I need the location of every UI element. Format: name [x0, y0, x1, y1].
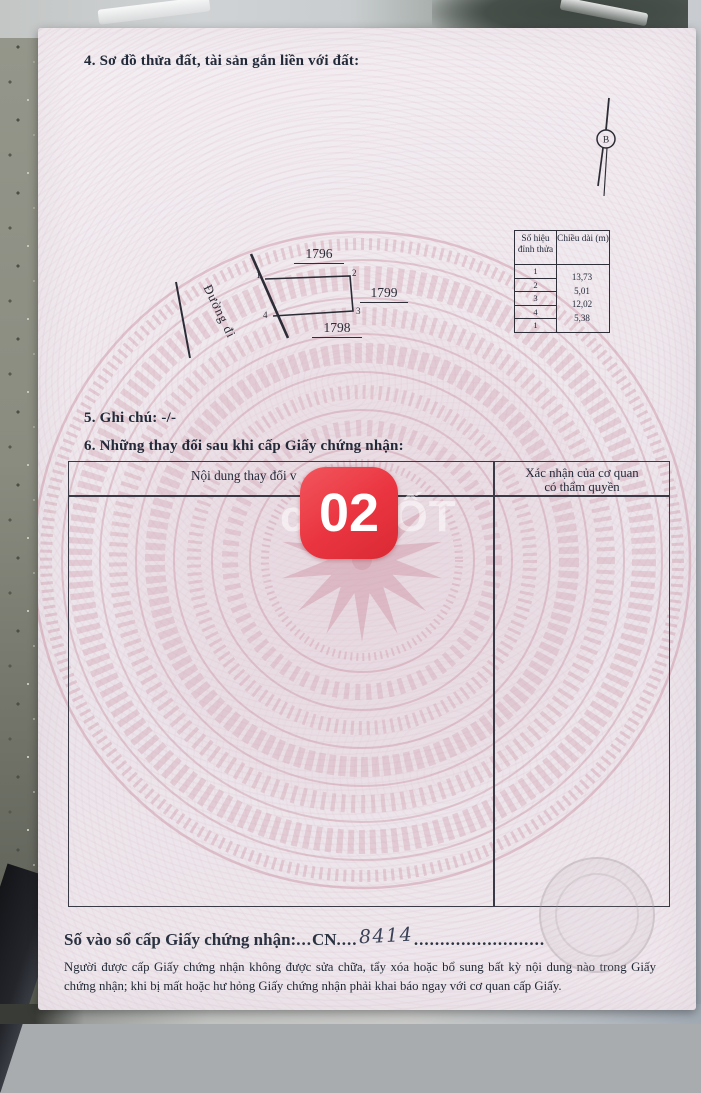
section5-title: 5. Ghi chú: -/- [84, 410, 176, 427]
dots: .... [337, 930, 358, 949]
vertex-label-3: 3 [356, 306, 361, 316]
vertex-id-cell: 1 [515, 319, 556, 332]
vertex-table-col2-header: Chiều dài (m) [557, 231, 609, 264]
north-label: B [603, 136, 609, 146]
parcel-boundary-lines [176, 254, 353, 358]
changes-table-col2-header-line1: Xác nhận của cơ quan [493, 466, 671, 480]
vertex-id-column: 1 2 3 4 1 [515, 265, 557, 332]
parcel-number-bottom: 1798 [312, 320, 362, 338]
north-arrow-icon: B [597, 98, 615, 196]
parcel-number-top: 1796 [294, 246, 344, 264]
road-edge-line [251, 254, 288, 338]
vertex-id-cell: 2 [515, 279, 556, 293]
certificate-page: 4. Sơ đồ thửa đất, tài sản gắn liền với … [38, 28, 696, 1010]
dots: ......................... [414, 930, 545, 949]
section6-title: 6. Những thay đổi sau khi cấp Giấy chứng… [84, 438, 404, 455]
vertex-table-header: Số hiệu đỉnh thửa Chiều dài (m) [515, 231, 609, 265]
registry-label: Số vào sổ cấp Giấy chứng nhận: [64, 930, 296, 949]
length-cell: 5,38 [557, 313, 607, 323]
length-cell: 5,01 [557, 286, 607, 296]
vertex-label-2: 2 [352, 268, 357, 278]
plot-outline [265, 276, 353, 316]
registry-number-line: Số vào sổ cấp Giấy chứng nhận:...CN....8… [64, 928, 545, 950]
vertex-id-cell: 4 [515, 306, 556, 320]
photo-of-land-certificate-page: { "sections": { "s4_title": "4. Sơ đồ th… [0, 0, 701, 1024]
changes-table-col1-header: Nội dung thay đổi v [191, 468, 297, 484]
changes-table-col2-header: Xác nhận của cơ quan có thẩm quyền [493, 466, 671, 494]
parcel-number-right: 1799 [360, 285, 408, 303]
vertex-label-4: 4 [263, 310, 268, 320]
vertex-table-col1-header: Số hiệu đỉnh thửa [515, 231, 557, 264]
length-cell: 12,02 [557, 299, 607, 309]
vertex-id-cell: 1 [515, 265, 556, 279]
photo-number-sticker: 02 [300, 467, 398, 559]
embossed-seal [539, 857, 655, 973]
road-far-edge-line [176, 282, 190, 358]
changes-table-col2-header-line2: có thẩm quyền [493, 480, 671, 494]
handwritten-registry-number: 8414 [358, 924, 413, 949]
vertex-length-table: Số hiệu đỉnh thửa Chiều dài (m) 1 2 3 4 … [514, 230, 610, 333]
vertex-id-cell: 3 [515, 292, 556, 306]
length-column: 13,73 5,01 12,02 5,38 [557, 265, 609, 332]
vertex-label-1: 1 [256, 270, 261, 280]
dots: ... [296, 930, 312, 949]
changes-table-column-divider [493, 462, 495, 906]
length-cell: 13,73 [557, 272, 607, 282]
registry-code: CN [312, 930, 337, 949]
